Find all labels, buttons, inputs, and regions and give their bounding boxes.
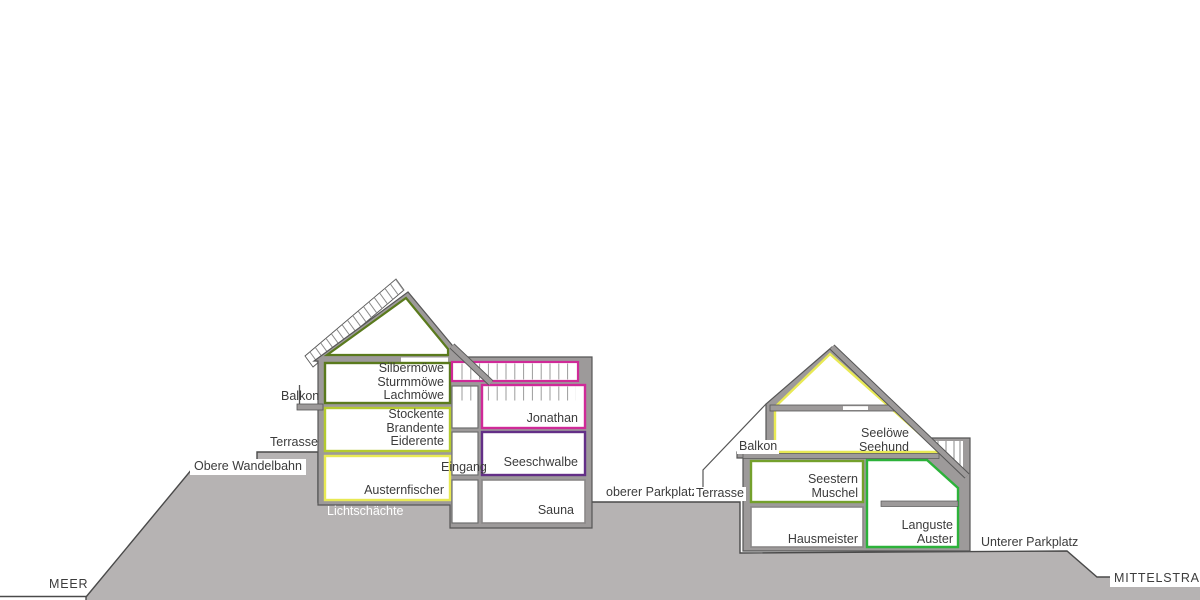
stair-landing-3	[452, 480, 478, 523]
label-room-seestern: Seestern Muschel	[808, 473, 858, 500]
label-room-seeschwalbe: Seeschwalbe	[504, 456, 578, 470]
railing-hatch-stair	[454, 387, 477, 401]
label-balkon-left: Balkon	[281, 390, 319, 404]
label-room-seeloewe: Seelöwe Seehund	[859, 427, 909, 454]
label-eingang: Eingang	[441, 461, 487, 475]
label-room-hausmeister: Hausmeister	[788, 533, 858, 547]
attic-slab-opening-right	[843, 406, 868, 410]
label-terrasse-left: Terrasse	[270, 436, 318, 450]
label-oberer-parkplatz: oberer Parkplatz	[606, 486, 698, 500]
label-lichtschaechte: Lichtschächte	[327, 505, 403, 519]
label-balkon-right: Balkon	[737, 440, 779, 454]
terrain	[0, 452, 1200, 600]
duplex-slab	[881, 501, 958, 507]
drawing-canvas	[0, 0, 1200, 600]
building-left	[297, 279, 592, 528]
balcony-slab-left	[297, 404, 323, 410]
label-room-stockente: Stockente Brandente Eiderente	[386, 408, 444, 449]
railing-hatch-jonathan	[484, 387, 576, 401]
label-mittelstrasse: MITTELSTRASSE	[1110, 571, 1200, 587]
label-room-sauna: Sauna	[538, 504, 574, 518]
label-room-austernfischer: Austernfischer	[364, 484, 444, 498]
upper-floor-slab-right	[743, 454, 939, 459]
label-unterer-parkplatz: Unterer Parkplatz	[981, 536, 1078, 550]
label-terrasse-right: Terrasse	[694, 487, 746, 501]
label-meer: MEER	[49, 578, 88, 592]
label-room-silbermoewe: Silbermöwe Sturmmöwe Lachmöwe	[377, 362, 444, 403]
label-room-jonathan: Jonathan	[527, 412, 578, 426]
attic-slab-right	[770, 405, 895, 411]
label-obere-wandelbahn: Obere Wandelbahn	[190, 459, 306, 475]
label-room-languste: Languste Auster	[902, 519, 953, 546]
section-drawing: MEER MITTELSTRASSE Obere Wandelbahn Lich…	[0, 0, 1200, 600]
